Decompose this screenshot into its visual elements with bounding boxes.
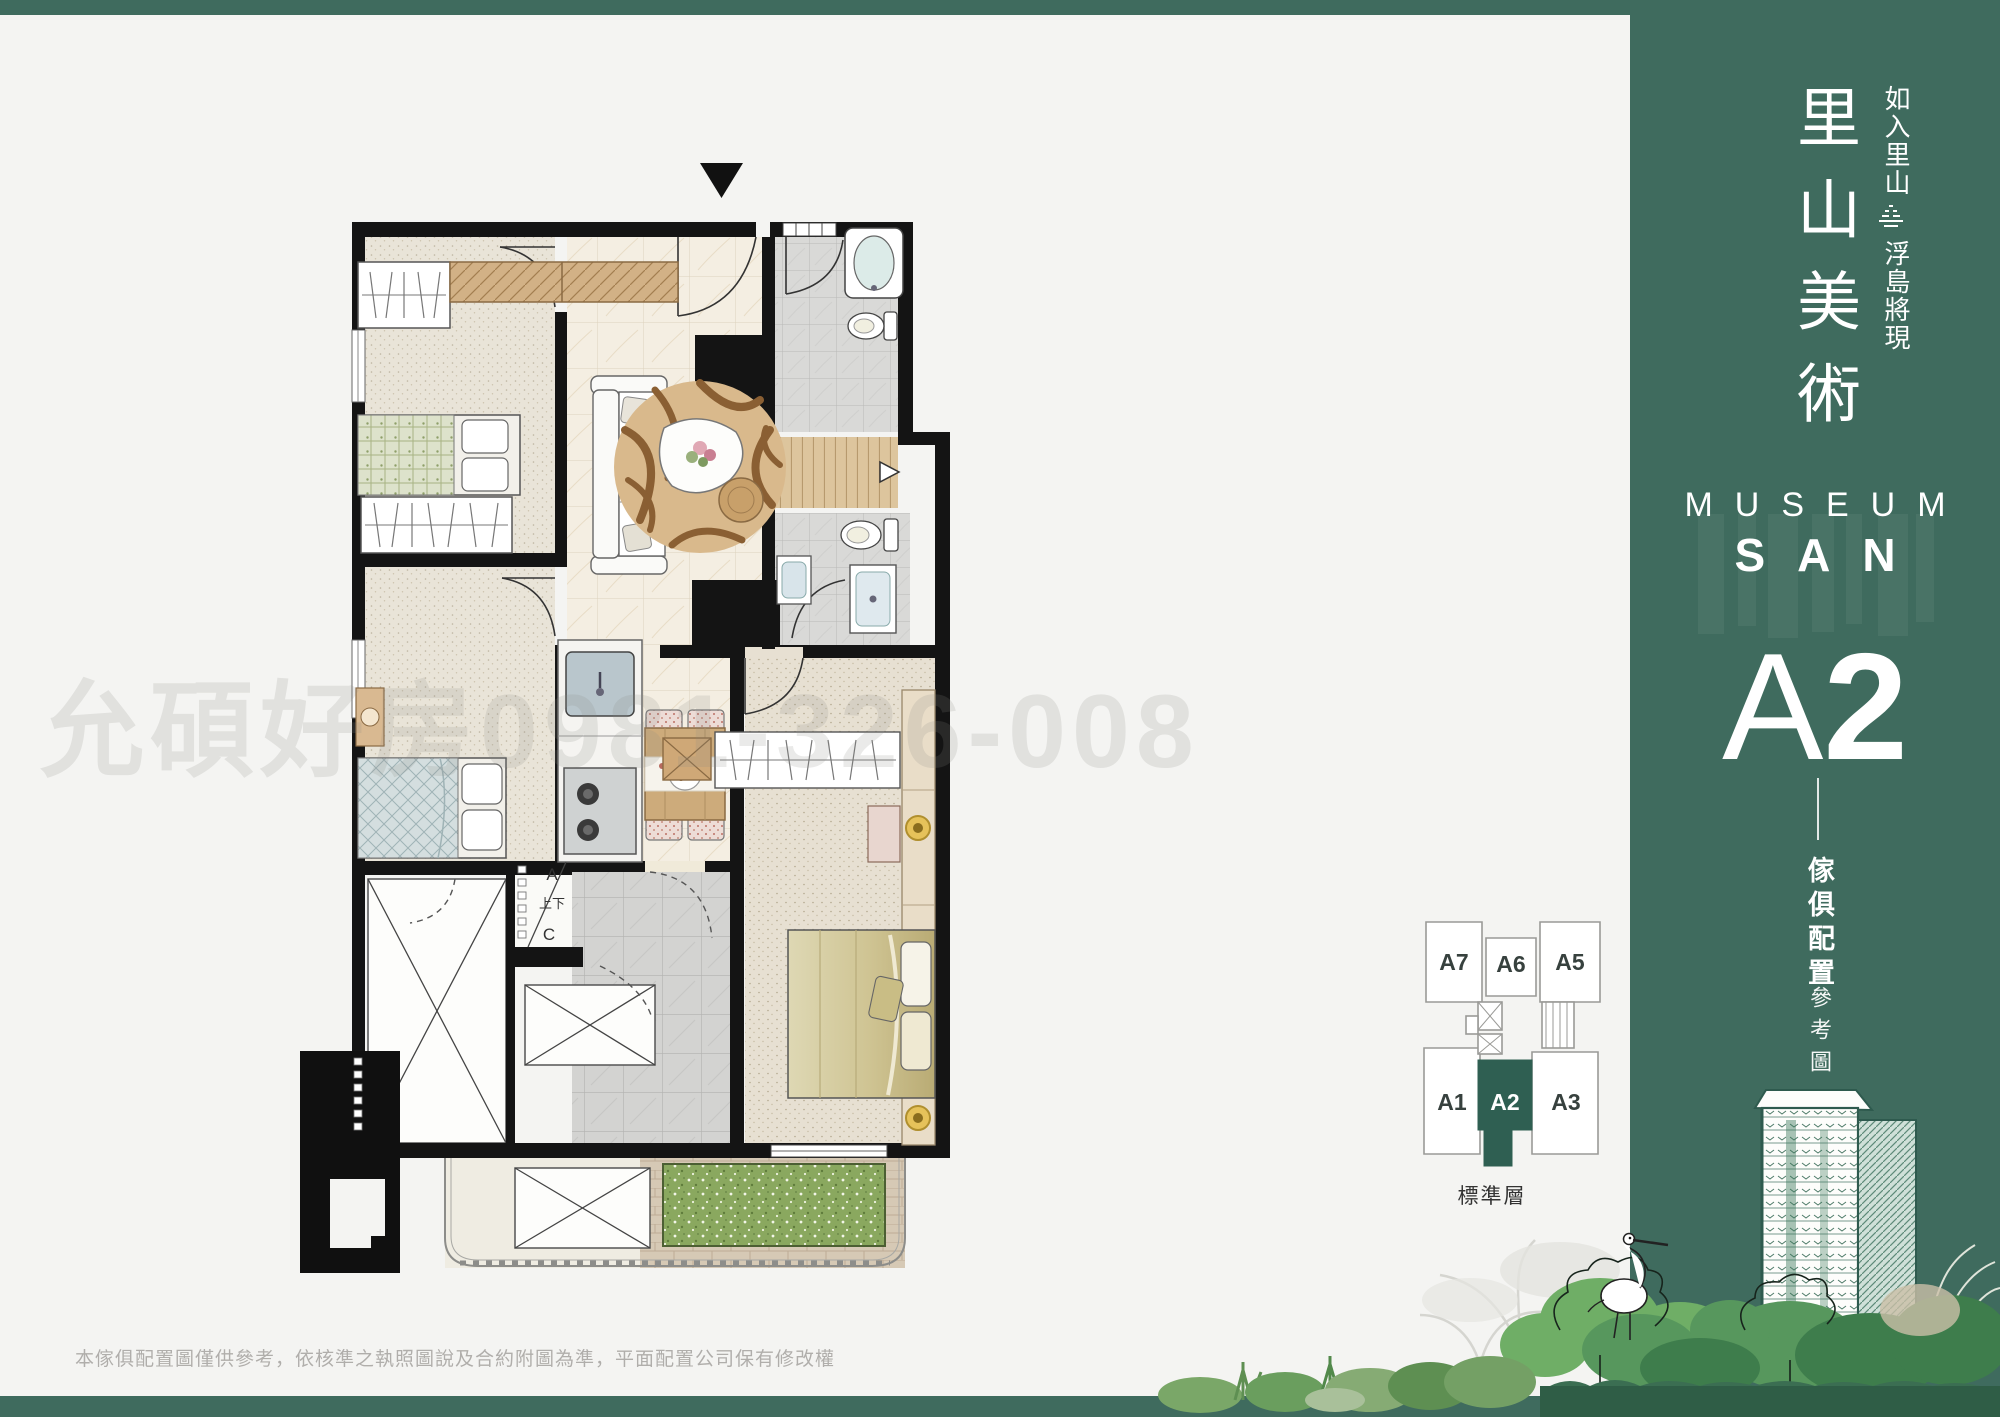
caption-furniture-layout: 傢俱配置 bbox=[1800, 856, 1839, 992]
shrub-row bbox=[1158, 1356, 1536, 1413]
slogan-top: 如入里山 bbox=[1878, 85, 1915, 197]
unit-code: A2 bbox=[1630, 620, 2000, 795]
planter-garden bbox=[663, 1164, 885, 1246]
master-side-table bbox=[868, 806, 900, 862]
grass-strip bbox=[1540, 1386, 2000, 1417]
keyplan-unit-a5: A5 bbox=[1555, 949, 1585, 975]
project-title-vertical: 里山美術 bbox=[1778, 84, 1870, 452]
bathtub bbox=[845, 228, 903, 298]
wardrobe-1 bbox=[361, 497, 512, 553]
brand-san: SAN bbox=[1630, 528, 2000, 582]
shower bbox=[850, 565, 896, 633]
keyplan-unit-a6: A6 bbox=[1496, 951, 1525, 977]
disclaimer-text: 本傢俱配置圖僅供參考，依核準之執照圖說及合約附圖為準，平面配置公司保有修改權 bbox=[75, 1344, 835, 1371]
unit-number: 2 bbox=[1823, 622, 1908, 792]
round-rug bbox=[614, 381, 786, 553]
stair-label-a: A bbox=[546, 865, 558, 884]
keyplan-unit-a7: A7 bbox=[1439, 949, 1468, 975]
stair-label-c: C bbox=[543, 925, 555, 944]
toilet-1 bbox=[848, 312, 897, 340]
shaft-box-2 bbox=[692, 580, 780, 645]
entry-cabinet bbox=[450, 262, 678, 302]
island-ripple-icon bbox=[1876, 204, 1906, 228]
top-green-bar bbox=[0, 0, 2000, 15]
brand-museum: MUSEUM bbox=[1630, 486, 2000, 525]
master-bed bbox=[788, 930, 935, 1098]
building-illustration bbox=[1100, 1040, 2000, 1417]
bed-1 bbox=[358, 415, 520, 495]
entrance-arrow bbox=[700, 163, 743, 198]
unit-letter: A bbox=[1722, 622, 1823, 792]
stair-label-updown: 上下 bbox=[539, 896, 565, 911]
toilet-2 bbox=[841, 519, 898, 551]
slogan-bottom: 浮島將現 bbox=[1878, 240, 1915, 352]
watermark: 允碩好房0981-326-008 bbox=[40, 646, 1200, 797]
stool bbox=[719, 478, 763, 522]
bath2-sink bbox=[777, 556, 811, 604]
brochure-page: 里山美術 如入里山 浮島將現 MUSEUM SAN A2 傢俱配置 參考圖 bbox=[0, 0, 2000, 1417]
vertical-divider bbox=[1817, 778, 1819, 840]
